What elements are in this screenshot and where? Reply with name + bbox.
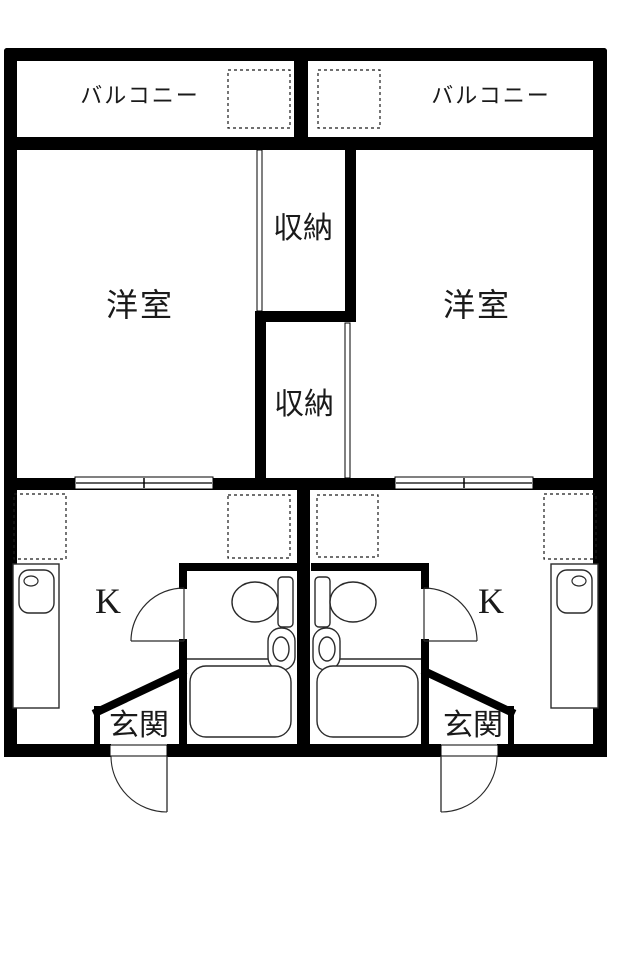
dashed-box-left-wall (14, 494, 66, 559)
wash-basin-bowl (273, 637, 289, 661)
faucet-icon (572, 576, 586, 586)
dashed-box-right-center (317, 495, 378, 557)
balcony-left-label: バルコニー (80, 83, 200, 108)
entry-threshold (441, 745, 498, 756)
closet-lower-sliding-door (345, 323, 350, 478)
entry-door-left (110, 745, 167, 812)
dashed-box-right-wall (544, 494, 596, 559)
kitchen-counter-left (13, 564, 59, 708)
sliding-door-right (395, 477, 533, 489)
wall-closet-upper-right (345, 137, 356, 322)
sliding-door-left (75, 477, 213, 489)
closet-lower: 収納 (274, 323, 350, 478)
floor-plan-drawing: バルコニー バルコニー 洋室 洋室 収納 収納 (0, 0, 617, 960)
toilet-tank-icon (315, 577, 330, 627)
kitchen-right-label: K (478, 581, 504, 621)
bathroom-left (187, 577, 295, 737)
entrance-left-diagonal-wall (97, 672, 182, 712)
wall-bath-left-top (179, 563, 297, 571)
wall-bath-left-upper (179, 563, 187, 589)
closet-upper-sliding-door (257, 150, 262, 311)
bathroom-right-door (424, 588, 477, 641)
door-swing-arc (441, 756, 497, 812)
floor-plan: バルコニー バルコニー 洋室 洋室 収納 収納 (0, 0, 617, 960)
bathroom-left-door (131, 588, 184, 641)
closet-upper-label: 収納 (273, 212, 333, 245)
door-swing-arc (111, 756, 167, 812)
wall-bath-right-lower (421, 639, 429, 750)
wall-center (297, 478, 310, 757)
bathtub-icon (190, 666, 291, 737)
wash-basin-bowl (319, 637, 335, 661)
wall-bath-left-lower (179, 639, 187, 750)
balcony-right-hatch-box (318, 70, 380, 128)
balcony-right: バルコニー (318, 70, 551, 128)
kitchen-counter-right (551, 564, 598, 708)
room-left-label: 洋室 (106, 287, 174, 323)
balcony-right-label: バルコニー (431, 83, 551, 108)
entry-threshold (110, 745, 167, 756)
toilet-icon (330, 582, 376, 622)
kitchen-sink-icon (557, 570, 592, 613)
entrance-left-label: 玄関 (109, 709, 169, 742)
kitchen-left-label: K (95, 581, 121, 621)
entry-door-right (441, 745, 498, 812)
bathtub-icon (317, 666, 418, 737)
wall-bath-right-top (311, 563, 429, 571)
kitchen-sink-icon (19, 570, 54, 613)
toilet-tank-icon (278, 577, 293, 627)
faucet-icon (24, 576, 38, 586)
dashed-box-left-center (228, 495, 290, 558)
wall-balcony-divider (294, 48, 308, 150)
door-swing-arc (131, 588, 184, 641)
toilet-icon (232, 582, 278, 622)
bathroom-right (313, 577, 421, 737)
room-right-label: 洋室 (443, 287, 511, 323)
wall-bath-right-upper (421, 563, 429, 589)
balcony-left: バルコニー (80, 70, 290, 128)
entrance-right-diagonal-wall (426, 672, 511, 712)
entrance-right-label: 玄関 (443, 709, 503, 742)
closet-upper: 収納 (257, 150, 333, 311)
wall-between-closets (255, 311, 355, 322)
door-swing-arc (424, 588, 477, 641)
balcony-left-hatch-box (228, 70, 290, 128)
closet-lower-label: 収納 (274, 388, 334, 421)
wall-closet-lower-left (255, 311, 266, 490)
